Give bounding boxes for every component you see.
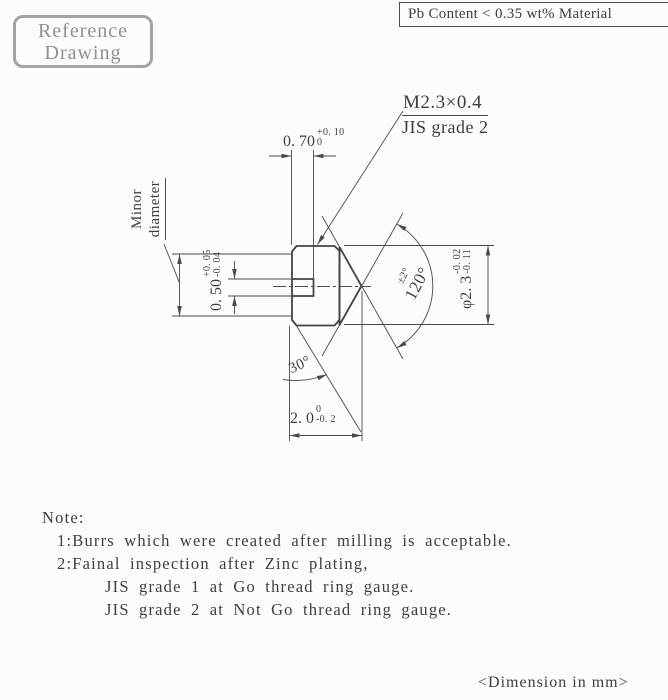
diameter-value: φ2. 3 <box>458 276 476 309</box>
slot-depth-value: 0. 70 <box>283 133 315 151</box>
minor-diameter-callout: Minor diameter <box>128 165 166 253</box>
chamfer-angle-value: 30° <box>286 353 313 377</box>
notes-title: Note: <box>42 508 85 528</box>
slot-depth-lower-tol: 0 <box>317 138 344 148</box>
material-note-box: Pb Content < 0.35 wt% Material <box>399 2 668 27</box>
thread-callout: M2.3×0.4 JIS grade 2 <box>402 92 488 138</box>
diameter-lower-tol: -0. 11 <box>463 249 473 274</box>
length-text: 2. 0 0 -0. 2 <box>290 410 336 430</box>
screw-body <box>292 246 340 326</box>
diameter-text: φ2. 3 -0. 02 -0. 11 <box>458 233 478 309</box>
driver-slot <box>292 279 314 296</box>
slot-depth-text: 0. 70 +0. 10 0 <box>283 133 344 153</box>
length-value: 2. 0 <box>290 410 314 428</box>
note-line-3: JIS grade 1 at Go thread ring gauge. <box>105 577 414 597</box>
slot-width-value: 0. 50 <box>208 279 226 311</box>
chamfer-angle-text: 30° <box>286 353 314 378</box>
screw-outline <box>292 246 362 326</box>
reference-stamp-line2: Drawing <box>45 42 122 64</box>
note-line-1: 1:Burrs which were created after milling… <box>57 531 512 551</box>
thread-spec-label: M2.3×0.4 <box>402 92 488 116</box>
material-note-text: Pb Content < 0.35 wt% Material <box>408 6 612 23</box>
slot-width-text: 0. 50 +0. 05 -0. 04 <box>208 239 228 311</box>
point-angle-text: ±2° 120° <box>390 256 434 305</box>
minor-diameter-word2: diameter <box>146 178 166 240</box>
note-line-2: 2:Fainal inspection after Zinc plating, <box>57 554 369 574</box>
length-lower-tol: -0. 2 <box>316 415 336 425</box>
slot-width-lower-tol: -0. 04 <box>213 250 223 277</box>
slot-width-dimension <box>228 261 291 314</box>
note-line-4: JIS grade 2 at Not Go thread ring gauge. <box>105 600 452 620</box>
slot-depth-dimension <box>269 150 336 278</box>
minor-diameter-word1: Minor <box>128 189 146 229</box>
dimension-unit-note: <Dimension in mm> <box>478 674 629 692</box>
cone-point <box>340 247 362 325</box>
reference-drawing-stamp: Reference Drawing <box>13 15 153 68</box>
reference-drawing-page: { "colors": { "line": "#4a4a4a", "text":… <box>0 0 668 700</box>
thread-grade-label: JIS grade 2 <box>402 117 488 138</box>
reference-stamp-line1: Reference <box>38 20 128 42</box>
